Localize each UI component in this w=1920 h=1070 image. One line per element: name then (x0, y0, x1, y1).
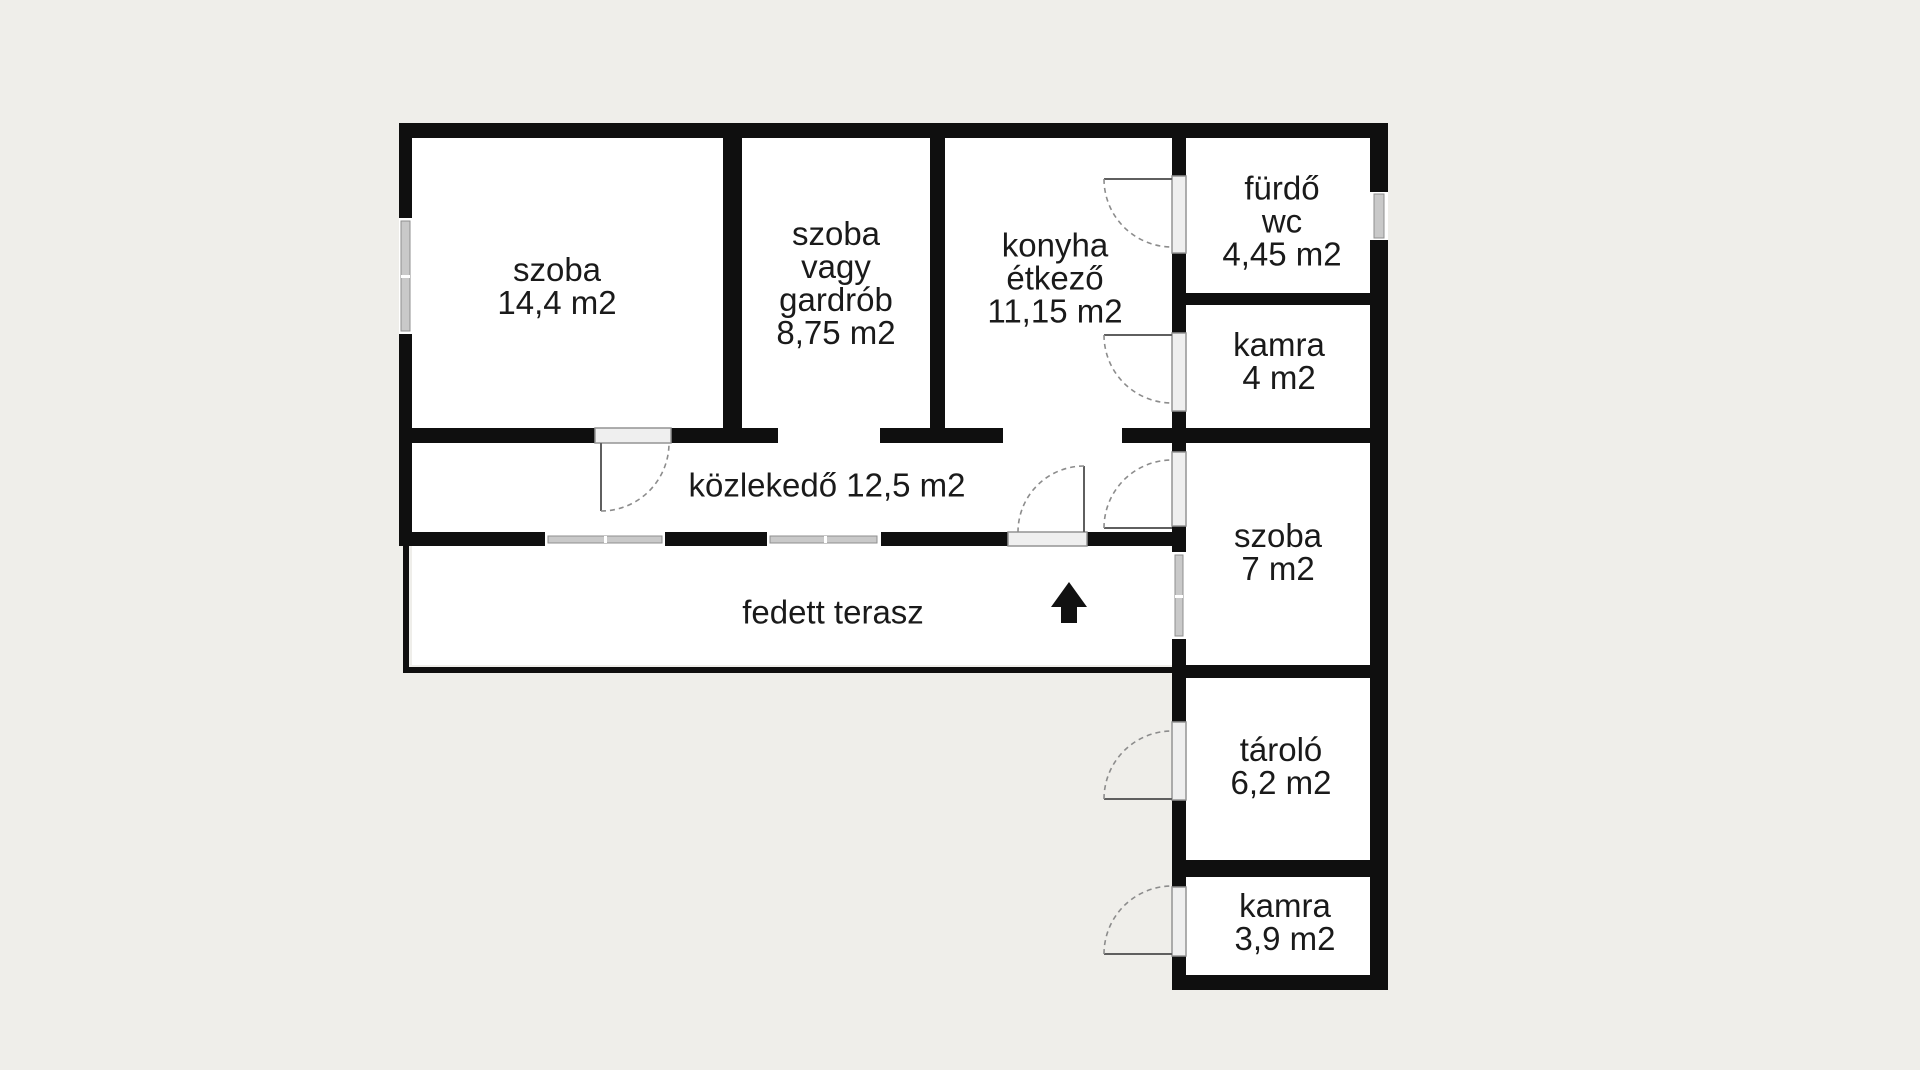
room-name: konyha (987, 229, 1122, 262)
room-label-fedett-terasz: fedett terasz (742, 596, 924, 629)
room-name: kamra (1235, 889, 1336, 922)
room-area: 4 m2 (1233, 361, 1325, 394)
room-label-konyha-etkezo: konyha étkező 11,15 m2 (987, 229, 1122, 328)
wall-segment (1172, 253, 1186, 333)
wall-segment (723, 138, 742, 428)
room-name: vagy (776, 250, 895, 283)
room-label-szoba-vagy-gardrob: szoba vagy gardrób 8,75 m2 (776, 217, 895, 349)
wall-segment (1172, 138, 1186, 176)
wall-segment (880, 428, 1003, 443)
room-area: 4,45 m2 (1222, 238, 1341, 271)
room-name: fedett terasz (742, 596, 924, 629)
window-divider (824, 536, 827, 543)
room-label-kozlekedo: közlekedő 12,5 m2 (688, 469, 965, 502)
window-divider (401, 275, 410, 278)
door-threshold (1172, 176, 1186, 253)
wall-segment (671, 428, 778, 443)
room-name: fürdő (1222, 172, 1341, 205)
room-area: 3,9 m2 (1235, 922, 1336, 955)
window-glass-bar (1374, 194, 1384, 238)
wall-segment (399, 334, 412, 546)
wall-segment (1370, 240, 1388, 990)
room-area: 6,2 m2 (1231, 766, 1332, 799)
room-name: étkező (987, 262, 1122, 295)
wall-segment (399, 532, 545, 546)
wall-segment (1172, 975, 1388, 990)
wall-segment (1172, 665, 1388, 678)
room-label-kamra-4: kamra 4 m2 (1233, 328, 1325, 394)
room-name: szoba (1234, 519, 1322, 552)
floor-plan-canvas: szoba 14,4 m2 szoba vagy gardrób 8,75 m2… (0, 0, 1920, 1070)
wall-segment (399, 138, 412, 218)
window-divider (1175, 595, 1183, 598)
room-label-tarolo: tároló 6,2 m2 (1231, 733, 1332, 799)
plan-paper (778, 428, 880, 443)
wall-segment (930, 138, 945, 443)
wall-segment (403, 546, 409, 672)
window-divider (604, 536, 607, 543)
room-area: 7 m2 (1234, 552, 1322, 585)
wall-segment (1172, 860, 1388, 877)
door-threshold (1172, 333, 1186, 411)
wall-segment (399, 123, 1388, 138)
room-name: tároló (1231, 733, 1332, 766)
room-name-and-area: közlekedő 12,5 m2 (688, 469, 965, 502)
wall-segment (881, 532, 1008, 546)
room-name: kamra (1233, 328, 1325, 361)
wall-segment (1172, 639, 1186, 722)
room-label-szoba-14-4: szoba 14,4 m2 (497, 253, 616, 319)
door-threshold (595, 428, 671, 443)
wall-segment (403, 667, 1172, 673)
room-area: 14,4 m2 (497, 286, 616, 319)
wall-segment (1370, 138, 1388, 192)
room-name: szoba (776, 217, 895, 250)
plan-paper (1003, 428, 1122, 443)
room-area: 11,15 m2 (987, 295, 1122, 328)
floor-plan-drawing (0, 0, 1920, 1070)
door-threshold (1172, 452, 1186, 526)
room-label-szoba-7: szoba 7 m2 (1234, 519, 1322, 585)
wall-segment (412, 428, 595, 443)
wall-segment (665, 532, 767, 546)
wall-segment (1186, 293, 1370, 305)
door-threshold (1172, 722, 1186, 800)
door-threshold (1172, 887, 1186, 956)
room-name: wc (1222, 205, 1341, 238)
wall-segment (1087, 532, 1186, 546)
window-glass-bar (770, 536, 877, 543)
room-name: szoba (497, 253, 616, 286)
room-label-furdo-wc: fürdő wc 4,45 m2 (1222, 172, 1341, 271)
door-threshold (1008, 532, 1087, 546)
room-area: 8,75 m2 (776, 316, 895, 349)
room-label-kamra-3-9: kamra 3,9 m2 (1235, 889, 1336, 955)
wall-segment (1122, 428, 1388, 443)
room-name: gardrób (776, 283, 895, 316)
